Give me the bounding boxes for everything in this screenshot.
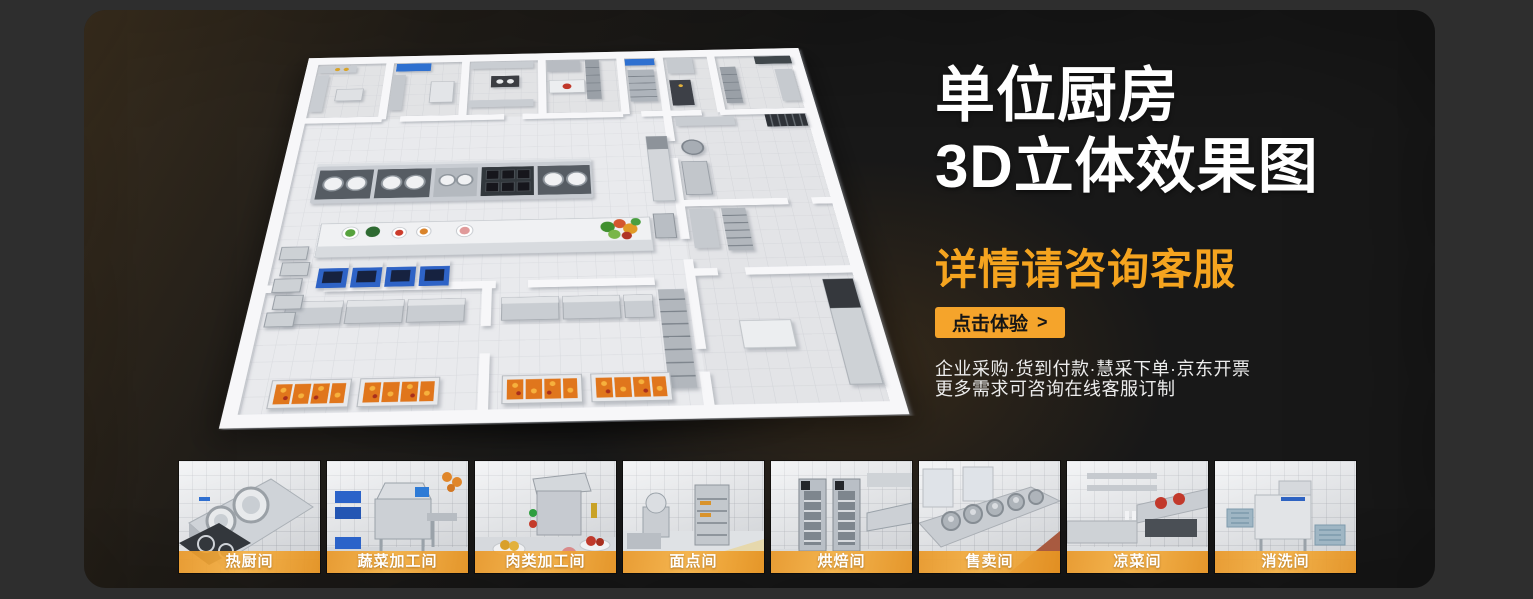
gallery-item-cold-dish[interactable]: 凉菜间 [1067,461,1208,573]
arrow-right-icon: > [1037,312,1048,333]
gallery-item-washing[interactable]: 消洗间 [1215,461,1356,573]
gallery-item-baking[interactable]: 烘焙间 [771,461,912,573]
gallery-item-label: 凉菜间 [1067,551,1208,573]
room-gallery: 热厨间 蔬菜加工间 [179,461,1356,573]
service-info: 企业采购·货到付款·慧采下单·京东开票 更多需求可咨询在线客服订制 [935,359,1250,399]
banner-panel: 单位厨房 3D立体效果图 详情请咨询客服 点击体验 > 企业采购·货到付款·慧采… [84,10,1435,588]
gallery-item-label: 消洗间 [1215,551,1356,573]
gallery-item-label: 面点间 [623,551,764,573]
gallery-item-pastry[interactable]: 面点间 [623,461,764,573]
gallery-item-sales[interactable]: 售卖间 [919,461,1060,573]
gallery-item-hot-kitchen[interactable]: 热厨间 [179,461,320,573]
gallery-item-meat-processing[interactable]: 肉类加工间 [475,461,616,573]
cooking-line [310,158,594,204]
title-line-1: 单位厨房 [935,60,1319,131]
info-line-1: 企业采购·货到付款·慧采下单·京东开票 [935,359,1250,379]
subtitle: 详情请咨询客服 [935,247,1236,293]
gallery-item-label: 热厨间 [179,551,320,573]
gallery-item-vegetable-processing[interactable]: 蔬菜加工间 [327,461,468,573]
info-line-2: 更多需求可咨询在线客服订制 [935,379,1250,399]
kitchen-floorplan-3d [192,47,916,431]
title-line-2: 3D立体效果图 [935,131,1319,202]
cta-label: 点击体验 [952,309,1028,336]
gallery-item-label: 蔬菜加工间 [327,551,468,573]
page-title: 单位厨房 3D立体效果图 [935,60,1319,202]
cta-button[interactable]: 点击体验 > [935,307,1065,338]
floorplan-svg [192,47,916,431]
gallery-item-label: 肉类加工间 [475,551,616,573]
gallery-item-label: 售卖间 [919,551,1060,573]
gallery-item-label: 烘焙间 [771,551,912,573]
